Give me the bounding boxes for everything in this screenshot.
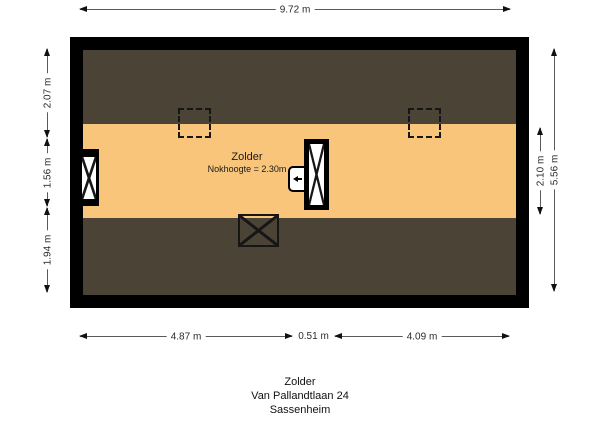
roof-slope-lower bbox=[83, 218, 516, 295]
plan-title-block: Zolder Van Pallandtlaan 24 Sassenheim bbox=[0, 375, 600, 417]
arrow-down-icon bbox=[44, 199, 50, 207]
floorplan-page: 9.72 m bbox=[0, 0, 600, 424]
skylight-icon bbox=[238, 214, 279, 247]
room-label-block: Zolder Nokhoogte = 2.30m bbox=[186, 151, 308, 175]
dimension-bottom-left: 4.87 m bbox=[79, 332, 293, 341]
dimension-left-middle: 1.56 m bbox=[43, 138, 52, 207]
arrow-down-icon bbox=[537, 207, 543, 215]
arrow-left-icon bbox=[79, 6, 87, 12]
dimension-left-upper: 2.07 m bbox=[43, 48, 52, 138]
dimension-bottom-right: 4.09 m bbox=[334, 332, 510, 341]
roof-window-outline bbox=[178, 108, 211, 138]
arrow-up-icon bbox=[44, 48, 50, 56]
window-icon bbox=[82, 157, 96, 199]
dimension-label: 4.87 m bbox=[167, 331, 206, 342]
dimension-label: 9.72 m bbox=[276, 4, 315, 15]
dimension-top-total: 9.72 m bbox=[79, 5, 511, 14]
plan-title-address: Van Pallandtlaan 24 bbox=[0, 389, 600, 403]
roof-slope-upper bbox=[83, 50, 516, 124]
dimension-label: 2.10 m bbox=[535, 152, 546, 191]
arrow-right-icon bbox=[285, 333, 293, 339]
dimension-bottom-middle: 0.51 m bbox=[293, 331, 334, 342]
roof-window-outline bbox=[408, 108, 441, 138]
dimension-label: 1.56 m bbox=[42, 153, 53, 192]
dimension-right-floor-depth: 2.10 m bbox=[536, 127, 545, 215]
dimension-left-lower: 1.94 m bbox=[43, 207, 52, 293]
ridge-height-label: Nokhoogte = 2.30m bbox=[186, 163, 308, 175]
dimension-label: 5.56 m bbox=[549, 151, 560, 190]
dimension-label: 2.07 m bbox=[42, 74, 53, 113]
dimension-label: 4.09 m bbox=[403, 331, 442, 342]
plan-title-city: Sassenheim bbox=[0, 403, 600, 417]
arrow-up-icon bbox=[44, 207, 50, 215]
arrow-left-icon bbox=[79, 333, 87, 339]
plan-title-room: Zolder bbox=[0, 375, 600, 389]
arrow-up-icon bbox=[537, 127, 543, 135]
arrow-up-icon bbox=[44, 138, 50, 146]
arrow-down-icon bbox=[551, 284, 557, 292]
arrow-right-icon bbox=[502, 333, 510, 339]
dimension-label: 1.94 m bbox=[42, 231, 53, 270]
arrow-right-icon bbox=[503, 6, 511, 12]
arrow-down-icon bbox=[44, 285, 50, 293]
stairs-opening bbox=[309, 144, 324, 205]
arrow-down-icon bbox=[44, 130, 50, 138]
arrow-left-icon bbox=[334, 333, 342, 339]
dimension-right-total: 5.56 m bbox=[550, 48, 559, 292]
arrow-up-icon bbox=[551, 48, 557, 56]
room-name: Zolder bbox=[186, 151, 308, 163]
